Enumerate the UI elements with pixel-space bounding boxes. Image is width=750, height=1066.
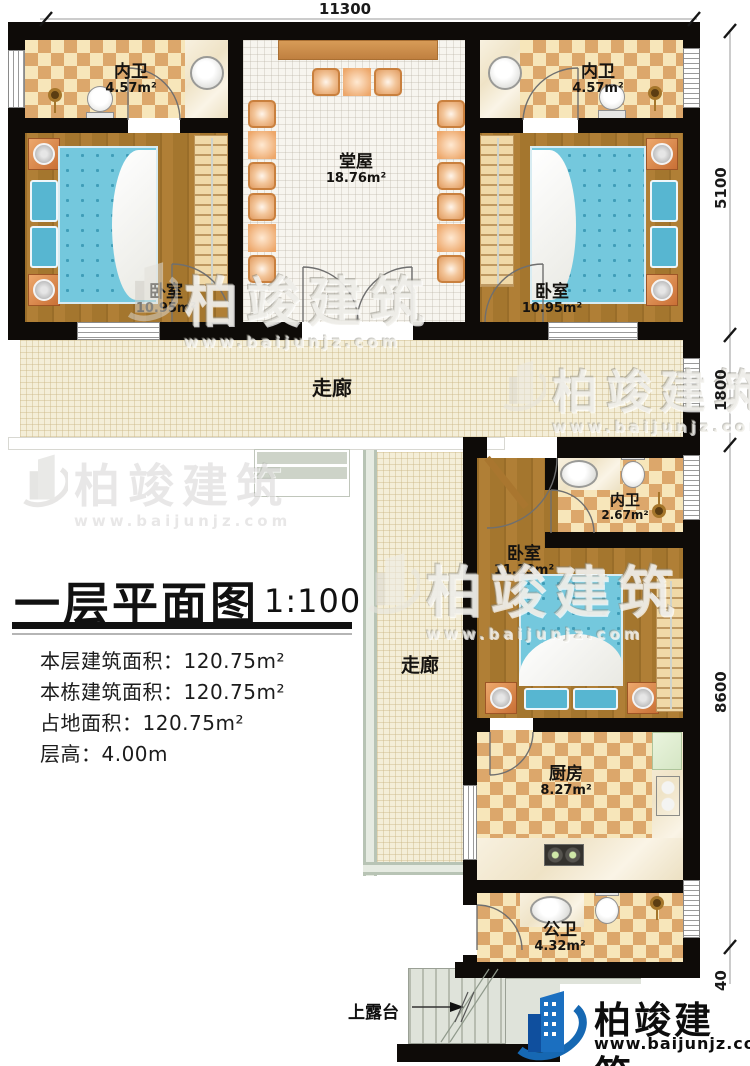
room-label-bath-top-right: 内卫4.57m² (572, 63, 623, 97)
outer-wall-left (8, 22, 25, 50)
watermark-logo-icon (18, 450, 68, 514)
wardrobe (656, 578, 684, 712)
chair (437, 193, 465, 221)
title-scale: 1:100 (264, 582, 361, 620)
brand-logo-text: 柏竣建筑 (594, 990, 750, 1066)
chair (437, 100, 465, 128)
wall-segment (228, 40, 243, 322)
wall-segment (545, 458, 558, 490)
nightstand (627, 682, 659, 714)
stairs (408, 968, 506, 1044)
pillow (573, 688, 618, 710)
tea-table (343, 68, 371, 96)
stat-floor-area: 本层建筑面积：120.75m² (40, 645, 285, 674)
room-label-hall: 堂屋18.76m² (326, 153, 386, 187)
pillow (30, 180, 58, 222)
shower-stem (54, 100, 56, 113)
window (548, 322, 638, 340)
stat-building-area: 本栋建筑面积：120.75m² (40, 676, 285, 705)
window (463, 785, 477, 860)
room-label-bath-top-left: 内卫4.57m² (105, 63, 156, 97)
window (683, 48, 700, 108)
wardrobe (194, 135, 228, 287)
corridor-vertical-edge-bottom (363, 862, 468, 875)
dimension-1800: 1800 (712, 352, 730, 428)
dimension-8600: 8600 (712, 652, 730, 732)
wall-segment (638, 322, 700, 340)
kitchen-sink-icon (656, 776, 680, 816)
wall-segment (180, 118, 228, 133)
stat-land-area: 占地面积：120.75m² (40, 707, 244, 736)
bed-blanket (112, 150, 156, 300)
shower-stem (654, 98, 656, 111)
stove-icon (544, 844, 584, 866)
console-table (278, 40, 438, 60)
title-rule-thin (12, 633, 352, 635)
chair (248, 100, 276, 128)
title-rule (12, 622, 352, 629)
wall-segment (557, 437, 700, 458)
pillow (650, 226, 678, 268)
wall-segment (480, 118, 523, 133)
wall-segment (533, 718, 683, 732)
tea-table (437, 131, 465, 159)
dimension-5100: 5100 (712, 148, 730, 228)
sink-icon (488, 56, 522, 90)
outer-wall-right (683, 108, 700, 358)
corridor-white-band (8, 437, 505, 450)
window (683, 455, 700, 520)
chair (248, 162, 276, 190)
outer-wall-right (683, 22, 700, 48)
wardrobe (480, 135, 514, 287)
room-label-bedroom-top-left: 卧室10.95m² (136, 283, 196, 317)
tea-table (437, 224, 465, 252)
room-label-corridor-vertical: 走廊 (401, 655, 439, 676)
wall-segment (545, 532, 683, 548)
wall-segment (413, 322, 548, 340)
shower-icon (652, 504, 666, 518)
window (683, 358, 700, 410)
chair (312, 68, 340, 96)
brand-logo-url: www.baijunjz.com (594, 1034, 750, 1053)
wall-segment (8, 322, 77, 340)
room-label-bath-public: 公卫4.32m² (534, 921, 585, 955)
pillow (650, 180, 678, 222)
floor-plan: 内卫4.57m² 内卫4.57m² 卧室10.95m² 卧室10.95m² 堂屋… (0, 0, 750, 1066)
chair (248, 193, 276, 221)
entry-steps (255, 450, 349, 496)
wall-segment (25, 118, 128, 133)
wall-segment (463, 718, 490, 732)
room-label-bedroom-middle: 卧室11.13m² (494, 545, 554, 579)
terrace-label: 上露台 (348, 998, 399, 1023)
pillow (524, 688, 569, 710)
tea-table (248, 131, 276, 159)
shower-stem (656, 908, 658, 920)
nightstand (28, 138, 60, 170)
dimension-top: 11300 (305, 0, 385, 18)
wall-segment (463, 880, 683, 893)
nightstand (28, 274, 60, 306)
pillow (30, 226, 58, 268)
chair (437, 255, 465, 283)
window (8, 50, 25, 108)
room-label-kitchen: 厨房8.27m² (540, 765, 591, 799)
chair (437, 162, 465, 190)
stat-storey-height: 层高：4.00m (40, 738, 168, 767)
wall-segment (578, 118, 683, 133)
outer-wall-top (8, 22, 700, 40)
corridor-vertical-edge (363, 450, 377, 876)
room-label-bedroom-top-right: 卧室10.95m² (522, 283, 582, 317)
nightstand (646, 274, 678, 306)
watermark: 柏竣建筑www.baijunjz.com (18, 450, 291, 530)
nightstand (485, 682, 517, 714)
window (77, 322, 160, 340)
fridge-icon (652, 732, 682, 770)
window (683, 880, 700, 938)
toilet-icon (594, 888, 620, 926)
sink-icon (190, 56, 224, 90)
wall-segment (160, 322, 302, 340)
chair (248, 255, 276, 283)
wall-segment (463, 458, 477, 785)
brand-logo-icon (506, 988, 590, 1062)
wall-segment (463, 437, 487, 458)
nightstand (646, 138, 678, 170)
wall-segment (465, 40, 480, 322)
room-label-bath-middle: 内卫2.67m² (601, 492, 648, 522)
outer-wall-right (683, 520, 700, 880)
wall-segment (455, 962, 700, 978)
outer-wall-left (8, 108, 25, 340)
tea-table (248, 224, 276, 252)
chair (374, 68, 402, 96)
sink-icon (560, 460, 598, 488)
room-label-corridor-horizontal: 走廊 (312, 377, 352, 399)
